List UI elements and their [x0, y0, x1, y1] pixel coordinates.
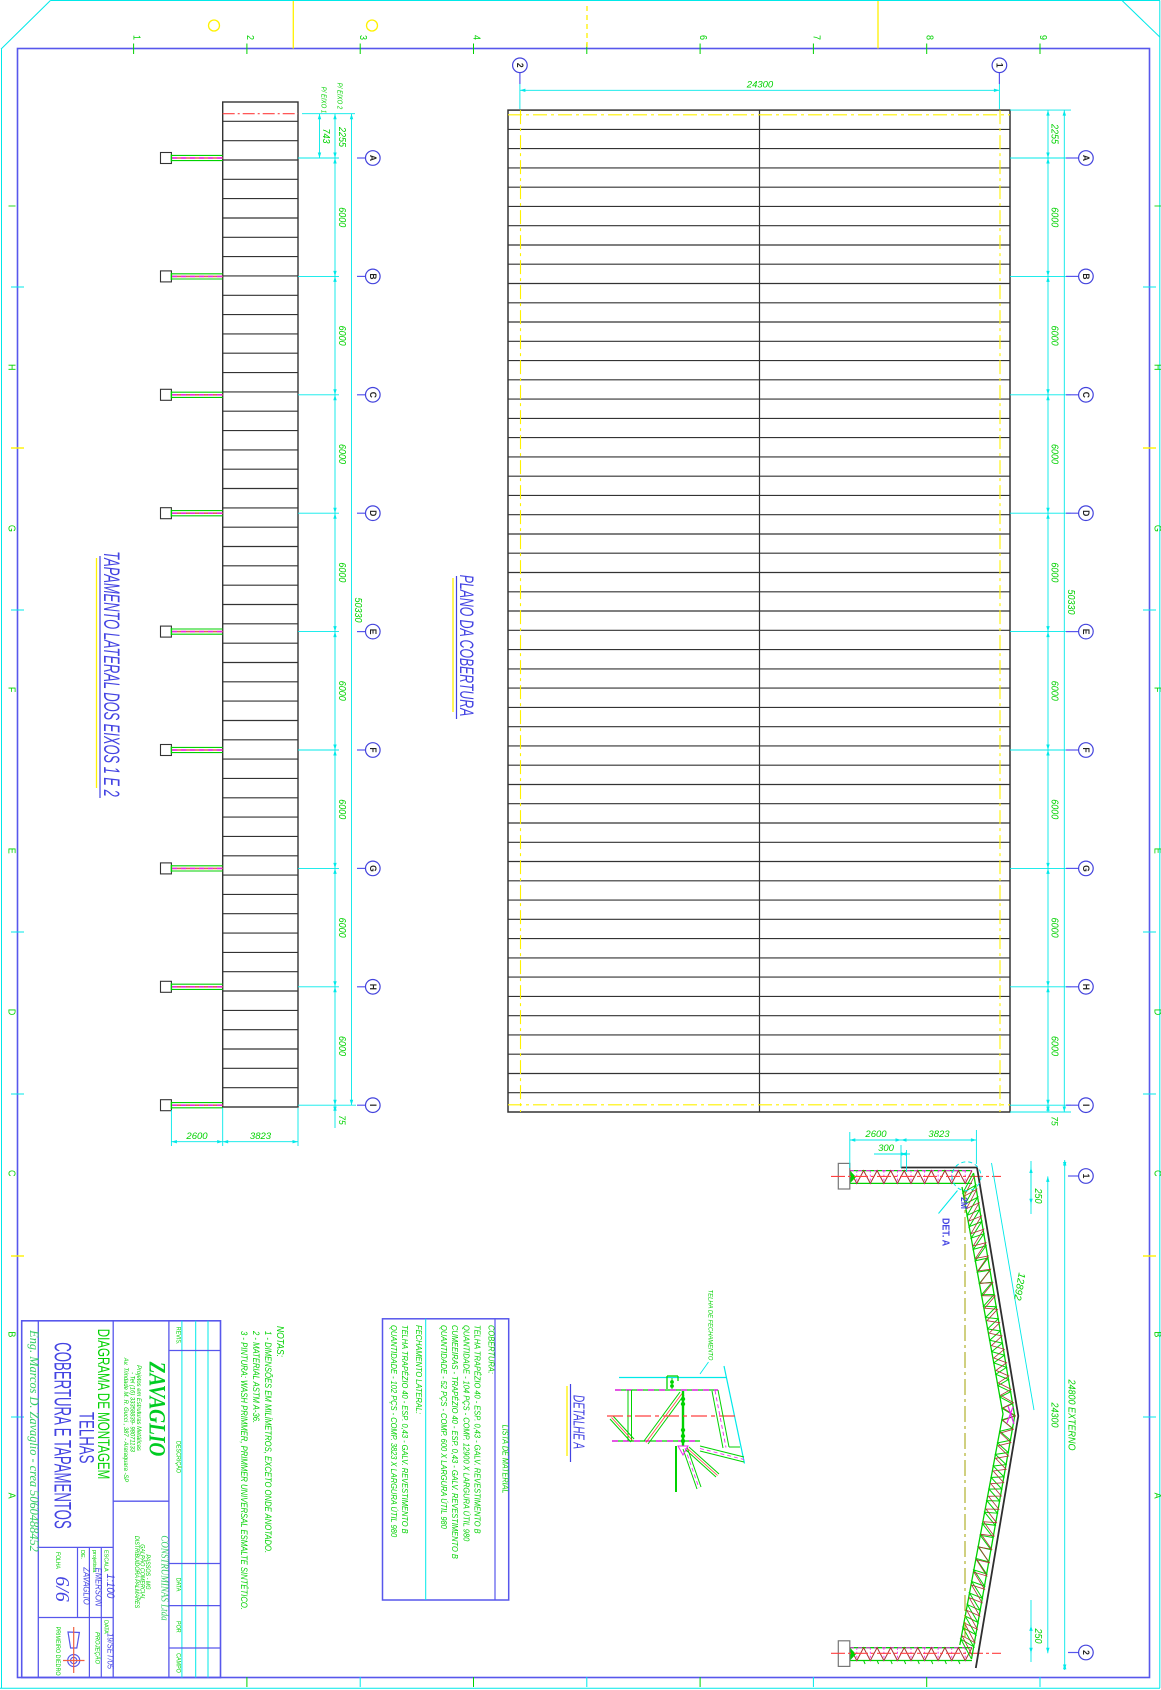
svg-text:PRIMEIRO DIEDRO: PRIMEIRO DIEDRO: [54, 1626, 60, 1676]
svg-text:EMERSON: EMERSON: [93, 1568, 104, 1608]
svg-text:B: B: [5, 1331, 17, 1337]
svg-text:6000: 6000: [1048, 562, 1060, 583]
svg-text:6000: 6000: [336, 207, 348, 228]
svg-text:3823: 3823: [928, 1129, 950, 1140]
svg-text:P/ EIXO 1: P/ EIXO 1: [319, 87, 327, 114]
svg-text:250: 250: [1032, 1628, 1044, 1645]
svg-text:CAMPO: CAMPO: [174, 1653, 180, 1673]
svg-text:B: B: [368, 273, 379, 280]
svg-text:G: G: [5, 525, 17, 532]
svg-text:2: 2: [244, 35, 256, 40]
svg-text:7: 7: [810, 35, 822, 40]
svg-text:A: A: [5, 1493, 17, 1500]
svg-text:1: 1: [994, 63, 1005, 68]
svg-text:6000: 6000: [336, 681, 348, 702]
svg-text:COBERTURA E TAPAMENTOS: COBERTURA E TAPAMENTOS: [48, 1342, 75, 1529]
svg-text:B: B: [1151, 1331, 1161, 1337]
svg-text:QUANTIDADE - 52 PÇS - COMP. 60: QUANTIDADE - 52 PÇS - COMP. 600 X LARGUR…: [439, 1325, 449, 1529]
svg-text:G: G: [368, 865, 379, 872]
svg-text:6000: 6000: [336, 444, 348, 465]
svg-text:DET. A: DET. A: [939, 1218, 951, 1246]
svg-text:DIAGRAMA DE MONTAGEM: DIAGRAMA DE MONTAGEM: [93, 1329, 112, 1480]
svg-text:2 - MATERIAL ASTM A-36.: 2 - MATERIAL ASTM A-36.: [251, 1330, 262, 1423]
svg-text:E: E: [1151, 848, 1161, 854]
svg-text:E: E: [368, 629, 379, 635]
svg-text:TELHA TRAPÉZIO 40 - ESP. 0,43: TELHA TRAPÉZIO 40 - ESP. 0,43 - GALV. RE…: [400, 1325, 410, 1534]
svg-text:I: I: [1151, 205, 1161, 207]
svg-text:75: 75: [337, 1115, 348, 1125]
svg-text:C: C: [1081, 392, 1092, 399]
svg-text:6000: 6000: [1048, 326, 1060, 347]
svg-text:3: 3: [357, 35, 369, 40]
svg-text:6000: 6000: [1048, 918, 1060, 939]
svg-text:3823: 3823: [250, 1131, 272, 1142]
svg-text:A: A: [1151, 1493, 1161, 1500]
svg-text:50330: 50330: [352, 598, 364, 624]
svg-text:D: D: [5, 1009, 17, 1016]
svg-text:H: H: [368, 984, 379, 990]
svg-text:6000: 6000: [1048, 681, 1060, 702]
svg-text:E: E: [5, 848, 17, 854]
svg-text:9: 9: [1037, 35, 1049, 40]
svg-text:1: 1: [130, 35, 142, 40]
svg-text:TAPAMENTO LATERAL DOS EIXOS: TAPAMENTO LATERAL DOS EIXOS 1 E 2: [99, 551, 123, 796]
svg-text:24300: 24300: [1048, 1402, 1060, 1429]
svg-text:A: A: [368, 155, 379, 162]
svg-text:F: F: [1151, 687, 1161, 693]
svg-text:19/SET/05: 19/SET/05: [105, 1633, 114, 1670]
svg-text:24300: 24300: [746, 80, 774, 91]
svg-text:DESCRIÇÃO: DESCRIÇÃO: [174, 1441, 181, 1474]
svg-text:POR: POR: [174, 1621, 180, 1633]
svg-text:1 - DIMENSÕES EM MILÍMETROS, E: 1 - DIMENSÕES EM MILÍMETROS, EXCETO ONDE…: [263, 1331, 274, 1553]
svg-text:LISTA DE MATERIAL: LISTA DE MATERIAL: [500, 1425, 510, 1494]
svg-text:C: C: [1151, 1170, 1161, 1177]
svg-text:6: 6: [697, 35, 709, 40]
svg-text:NOTAS:: NOTAS:: [274, 1326, 286, 1357]
svg-text:I: I: [368, 1104, 379, 1106]
svg-text:H: H: [1081, 984, 1092, 990]
svg-text:TELHA DE FECHAMENTO: TELHA DE FECHAMENTO: [706, 1290, 713, 1361]
svg-text:CUMEEIRAS - TRAPÉZIO 40 - ESP.: CUMEEIRAS - TRAPÉZIO 40 - ESP. 0,43 - GA…: [450, 1325, 460, 1559]
svg-text:C: C: [368, 392, 379, 399]
svg-text:PLANO DA COBERTURA: PLANO DA COBERTURA: [455, 575, 475, 716]
svg-text:F: F: [5, 687, 17, 693]
svg-text:PASSOS - MG: PASSOS - MG: [144, 1554, 150, 1590]
svg-text:6000: 6000: [336, 326, 348, 347]
svg-text:250: 250: [1032, 1188, 1044, 1205]
svg-text:D: D: [1081, 510, 1092, 517]
svg-text:24800 EXTERNO: 24800 EXTERNO: [1065, 1379, 1077, 1451]
svg-text:D: D: [1151, 1009, 1161, 1016]
svg-text:H: H: [1151, 364, 1161, 371]
svg-text:2M: 2M: [959, 1197, 970, 1209]
svg-text:ZAVAGLIO: ZAVAGLIO: [144, 1361, 170, 1457]
svg-text:6000: 6000: [336, 918, 348, 939]
svg-text:DE.: DE.: [79, 1550, 85, 1560]
svg-text:ZAVAGLIO: ZAVAGLIO: [81, 1566, 92, 1605]
svg-text:G: G: [1081, 865, 1092, 872]
svg-text:P/ EIXO 2: P/ EIXO 2: [335, 83, 343, 110]
svg-text:2: 2: [1081, 1650, 1092, 1655]
svg-text:I: I: [5, 205, 17, 207]
svg-text:E: E: [1081, 629, 1092, 635]
svg-text:Av. Trindade M. R. Gucci , 387: Av. Trindade M. R. Gucci , 387 - Araraqu…: [122, 1357, 129, 1483]
svg-text:4: 4: [470, 35, 482, 40]
svg-text:CONSTRUMINAS Ltda: CONSTRUMINAS Ltda: [158, 1535, 169, 1620]
svg-text:6000: 6000: [1048, 1036, 1060, 1057]
svg-text:2: 2: [515, 63, 526, 68]
svg-text:D: D: [368, 510, 379, 517]
svg-text:743: 743: [320, 128, 332, 144]
svg-text:TELHA TRAPÉZIO 40 - ESP. 0,43: TELHA TRAPÉZIO 40 - ESP. 0,43 - GALV. RE…: [473, 1325, 483, 1534]
svg-text:2600: 2600: [864, 1129, 887, 1140]
svg-text:75: 75: [1049, 1116, 1060, 1126]
svg-text:ESCALA: ESCALA: [103, 1550, 109, 1572]
svg-text:6000: 6000: [1048, 207, 1060, 228]
svg-text:I: I: [1081, 1104, 1092, 1106]
svg-text:DISTRIBUIDORA PALMARES: DISTRIBUIDORA PALMARES: [133, 1536, 139, 1609]
svg-text:1:100: 1:100: [104, 1574, 116, 1599]
svg-text:G: G: [1151, 525, 1161, 532]
svg-text:COBERTURA:: COBERTURA:: [486, 1325, 496, 1374]
svg-text:6000: 6000: [336, 1036, 348, 1057]
svg-text:DATA: DATA: [174, 1578, 180, 1592]
svg-text:300: 300: [878, 1143, 895, 1154]
svg-text:QUANTIDADE - 102 PÇS - COMP. 3: QUANTIDADE - 102 PÇS - COMP. 3823 X LARG…: [389, 1325, 399, 1538]
svg-text:QUANTIDADE - 104 PÇS - COMP. 1: QUANTIDADE - 104 PÇS - COMP. 12900 X LAR…: [461, 1325, 471, 1542]
svg-text:6/6: 6/6: [51, 1576, 73, 1602]
svg-text:F: F: [368, 747, 379, 753]
svg-text:2600: 2600: [185, 1131, 208, 1142]
svg-text:B: B: [1081, 273, 1092, 280]
svg-text:2255: 2255: [1048, 123, 1060, 145]
svg-text:6000: 6000: [1048, 444, 1060, 465]
svg-text:REVIS.: REVIS.: [174, 1327, 180, 1345]
svg-text:6000: 6000: [336, 562, 348, 583]
svg-text:A: A: [1081, 155, 1092, 162]
svg-text:2255: 2255: [336, 126, 348, 148]
svg-text:8: 8: [924, 35, 936, 40]
svg-text:FECHAMENTO LATERAL:: FECHAMENTO LATERAL:: [414, 1325, 424, 1414]
svg-text:FOLHA: FOLHA: [54, 1552, 60, 1569]
svg-text:H: H: [5, 364, 17, 371]
svg-text:6000: 6000: [1048, 799, 1060, 820]
svg-text:PROJEÇÃO: PROJEÇÃO: [93, 1632, 100, 1664]
svg-text:C: C: [5, 1170, 17, 1177]
svg-text:3 - PINTURA: WASH PRIMMER, PRI: 3 - PINTURA: WASH PRIMMER, PRIMMER UNIVE…: [239, 1331, 250, 1610]
svg-text:DETALHE A: DETALHE A: [570, 1395, 588, 1449]
svg-text:6000: 6000: [336, 799, 348, 820]
svg-text:F: F: [1081, 747, 1092, 753]
svg-text:Eng. Marcos D. Zavaglio - crea: Eng. Marcos D. Zavaglio - crea 506048845…: [27, 1329, 41, 1552]
svg-text:1: 1: [1081, 1174, 1092, 1179]
svg-text:50330: 50330: [1065, 590, 1077, 616]
